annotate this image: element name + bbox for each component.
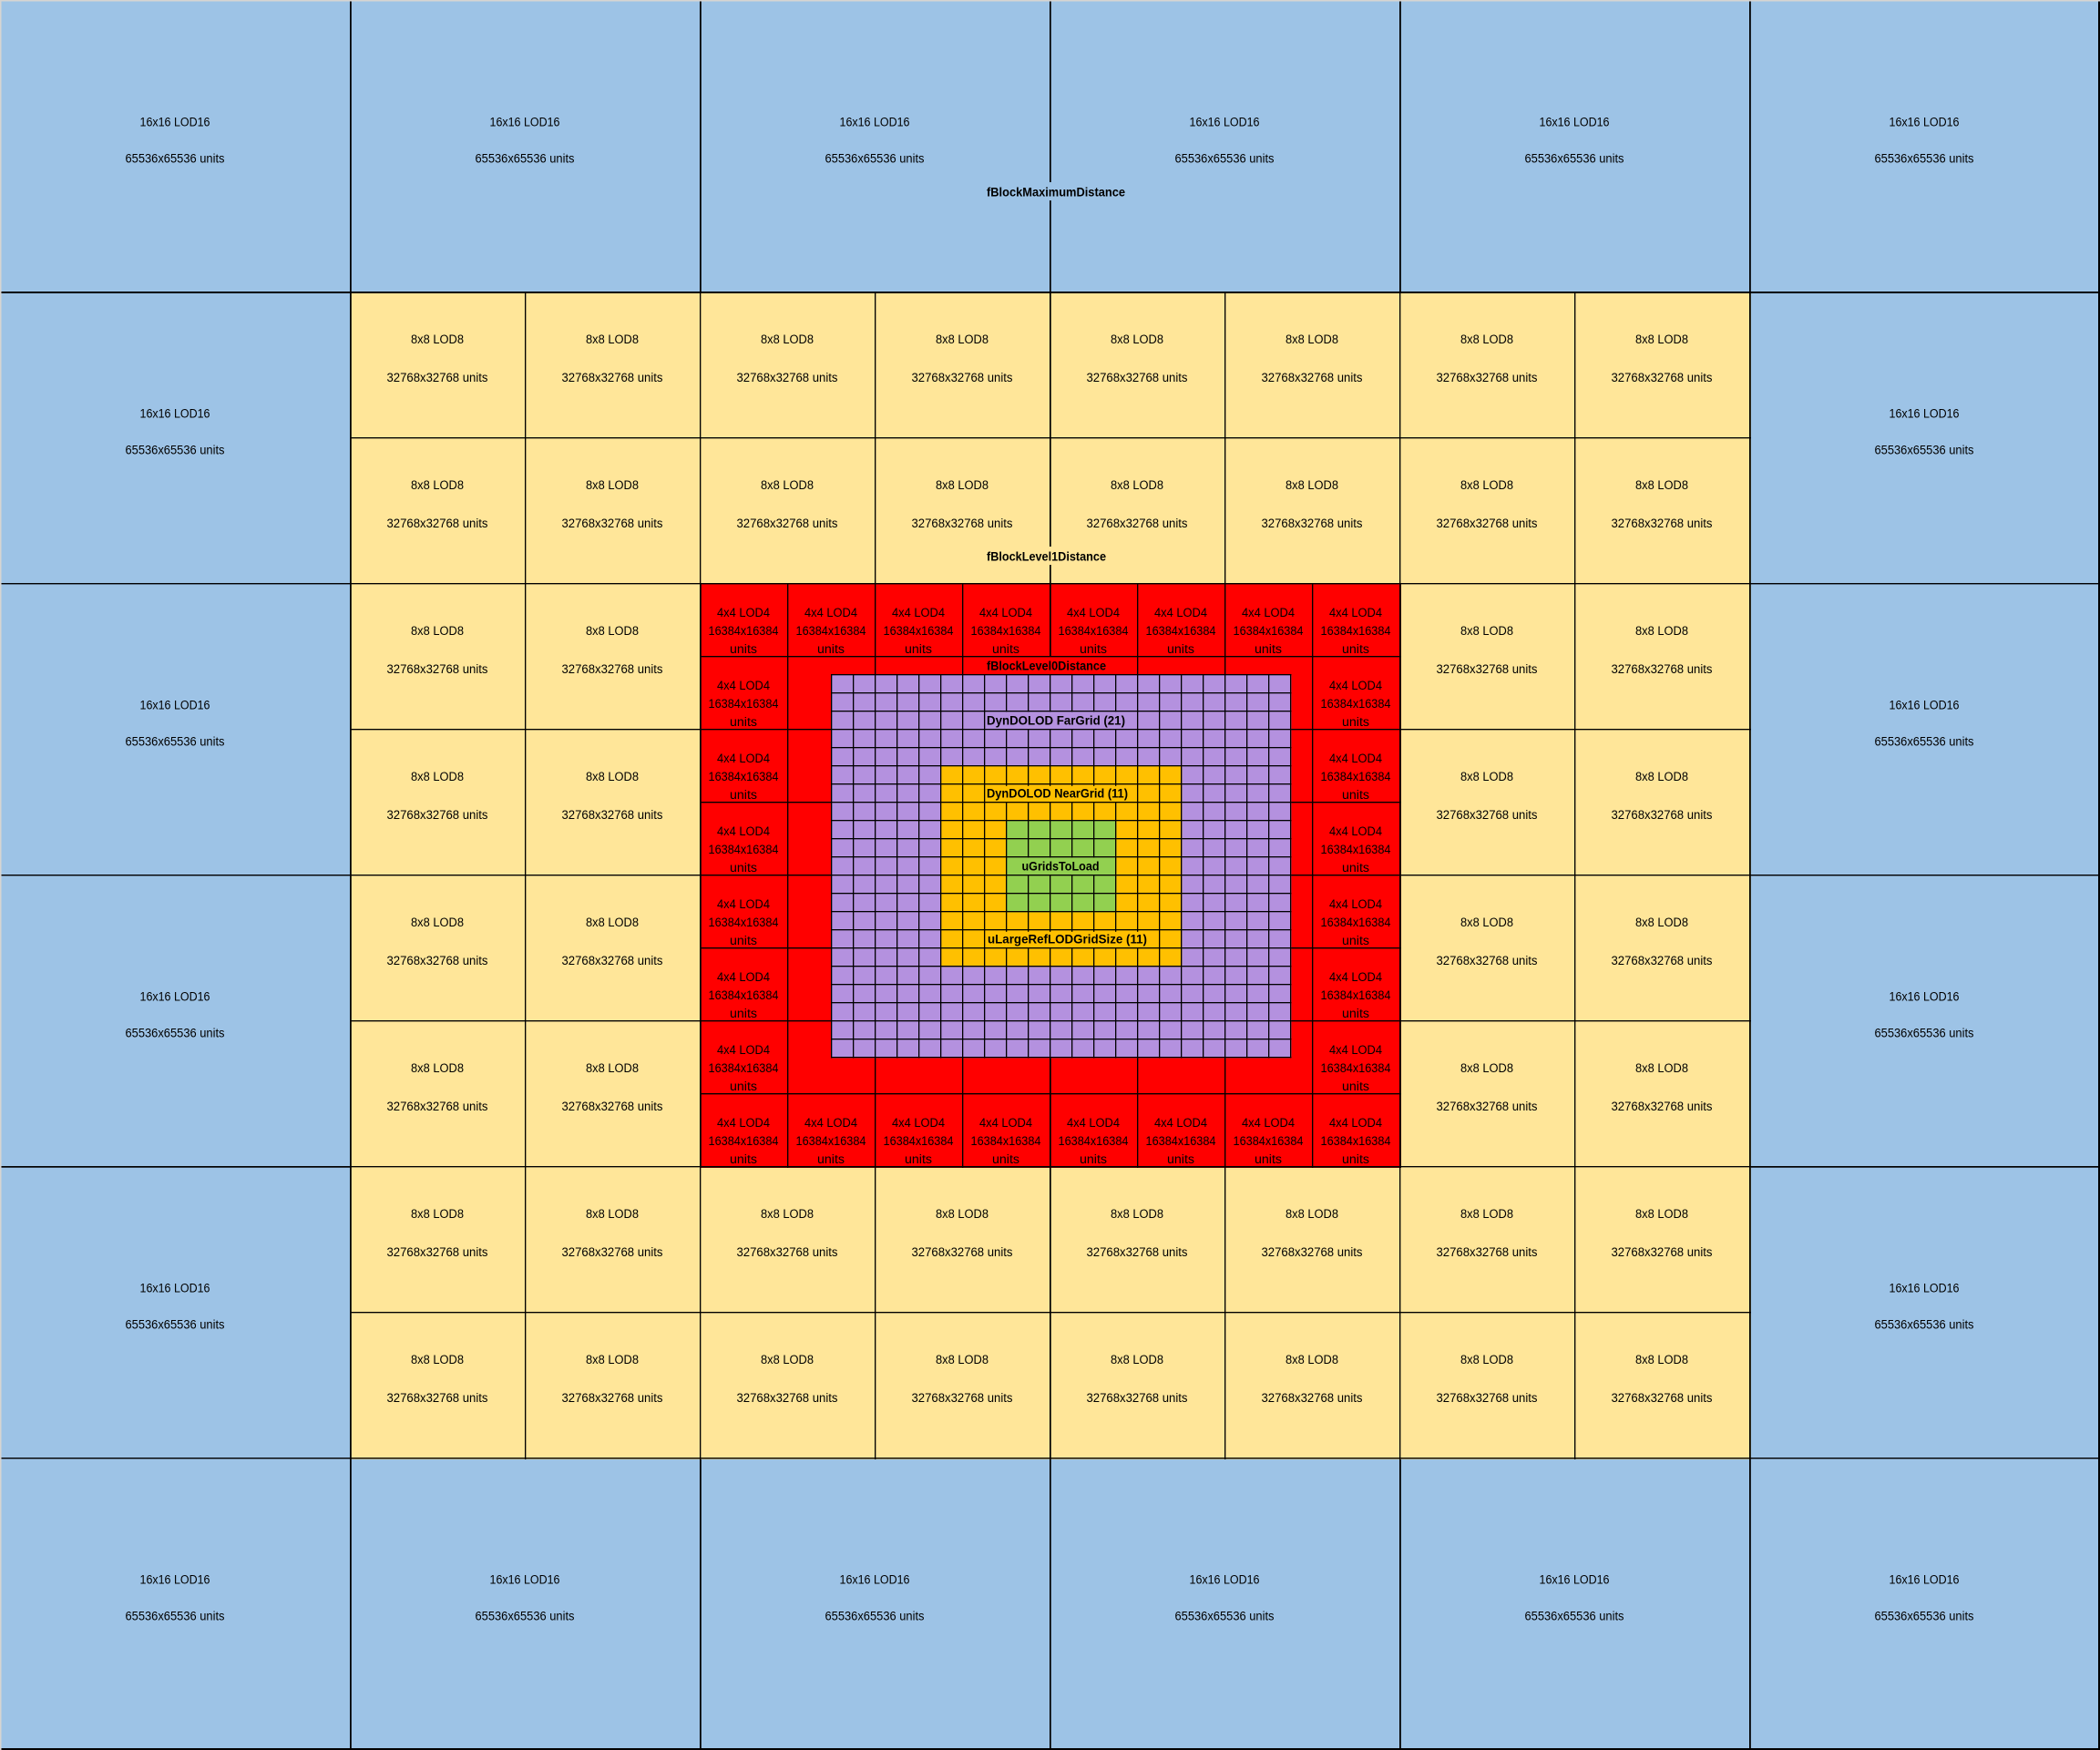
svg-text:8x8 LOD8: 8x8 LOD8 [1460, 478, 1513, 493]
svg-text:16x16 LOD16: 16x16 LOD16 [1540, 1572, 1610, 1587]
svg-text:65536x65536 units: 65536x65536 units [1525, 151, 1624, 166]
svg-text:16x16 LOD16: 16x16 LOD16 [140, 115, 210, 129]
svg-text:8x8 LOD8: 8x8 LOD8 [1111, 478, 1163, 493]
svg-text:8x8 LOD8: 8x8 LOD8 [1460, 916, 1513, 930]
svg-text:32768x32768 units: 32768x32768 units [1437, 1100, 1538, 1114]
svg-text:units: units [1342, 934, 1369, 948]
svg-text:4x4 LOD4: 4x4 LOD4 [979, 1116, 1032, 1131]
svg-text:4x4 LOD4: 4x4 LOD4 [717, 897, 770, 912]
svg-text:32768x32768 units: 32768x32768 units [912, 1391, 1013, 1406]
svg-text:65536x65536 units: 65536x65536 units [476, 1609, 575, 1623]
svg-text:16x16 LOD16: 16x16 LOD16 [1890, 989, 1960, 1004]
svg-text:16x16 LOD16: 16x16 LOD16 [1890, 1572, 1960, 1587]
svg-text:32768x32768 units: 32768x32768 units [1612, 1245, 1713, 1260]
svg-text:4x4 LOD4: 4x4 LOD4 [979, 606, 1032, 620]
svg-text:8x8 LOD8: 8x8 LOD8 [1460, 1061, 1513, 1076]
svg-text:32768x32768 units: 32768x32768 units [912, 371, 1013, 385]
svg-text:65536x65536 units: 65536x65536 units [825, 151, 925, 166]
svg-text:4x4 LOD4: 4x4 LOD4 [804, 606, 857, 620]
svg-text:65536x65536 units: 65536x65536 units [126, 1026, 225, 1040]
svg-text:65536x65536 units: 65536x65536 units [1525, 1609, 1624, 1623]
svg-text:8x8 LOD8: 8x8 LOD8 [1635, 478, 1688, 493]
svg-text:4x4 LOD4: 4x4 LOD4 [717, 606, 770, 620]
svg-text:32768x32768 units: 32768x32768 units [387, 954, 488, 968]
svg-text:8x8 LOD8: 8x8 LOD8 [586, 333, 639, 347]
svg-text:4x4 LOD4: 4x4 LOD4 [717, 752, 770, 766]
svg-text:32768x32768 units: 32768x32768 units [387, 1100, 488, 1114]
svg-text:32768x32768 units: 32768x32768 units [387, 371, 488, 385]
svg-text:16384x16384: 16384x16384 [709, 697, 779, 711]
svg-text:fBlockLevel1Distance: fBlockLevel1Distance [987, 549, 1106, 564]
svg-text:16x16 LOD16: 16x16 LOD16 [1890, 406, 1960, 421]
svg-text:8x8 LOD8: 8x8 LOD8 [586, 1207, 639, 1222]
svg-text:8x8 LOD8: 8x8 LOD8 [586, 1061, 639, 1076]
svg-text:8x8 LOD8: 8x8 LOD8 [761, 1207, 814, 1222]
svg-text:uGridsToLoad: uGridsToLoad [1022, 859, 1100, 874]
svg-text:32768x32768 units: 32768x32768 units [562, 954, 663, 968]
svg-text:4x4 LOD4: 4x4 LOD4 [717, 824, 770, 839]
svg-text:16x16 LOD16: 16x16 LOD16 [140, 1281, 210, 1295]
svg-text:32768x32768 units: 32768x32768 units [737, 517, 838, 531]
svg-text:32768x32768 units: 32768x32768 units [1437, 517, 1538, 531]
svg-text:65536x65536 units: 65536x65536 units [126, 1317, 225, 1332]
svg-text:8x8 LOD8: 8x8 LOD8 [1286, 478, 1338, 493]
svg-text:4x4 LOD4: 4x4 LOD4 [1329, 1116, 1382, 1131]
svg-text:8x8 LOD8: 8x8 LOD8 [1286, 1207, 1338, 1222]
svg-text:4x4 LOD4: 4x4 LOD4 [717, 1043, 770, 1058]
svg-text:4x4 LOD4: 4x4 LOD4 [1329, 1043, 1382, 1058]
svg-text:32768x32768 units: 32768x32768 units [562, 517, 663, 531]
svg-text:8x8 LOD8: 8x8 LOD8 [411, 1353, 464, 1367]
svg-text:32768x32768 units: 32768x32768 units [1087, 1245, 1188, 1260]
svg-text:units: units [1080, 1152, 1107, 1167]
svg-text:16x16 LOD16: 16x16 LOD16 [1890, 698, 1960, 712]
svg-text:units: units [730, 788, 757, 803]
svg-text:8x8 LOD8: 8x8 LOD8 [1286, 333, 1338, 347]
svg-text:units: units [730, 1007, 757, 1021]
svg-text:16x16 LOD16: 16x16 LOD16 [1190, 1572, 1260, 1587]
svg-text:16x16 LOD16: 16x16 LOD16 [140, 698, 210, 712]
svg-text:4x4 LOD4: 4x4 LOD4 [1329, 824, 1382, 839]
svg-text:8x8 LOD8: 8x8 LOD8 [411, 478, 464, 493]
svg-text:16384x16384: 16384x16384 [709, 1134, 779, 1149]
svg-text:16384x16384: 16384x16384 [709, 624, 779, 639]
svg-text:8x8 LOD8: 8x8 LOD8 [1286, 1353, 1338, 1367]
svg-text:65536x65536 units: 65536x65536 units [1875, 1317, 1974, 1332]
svg-text:units: units [730, 1080, 757, 1094]
svg-text:8x8 LOD8: 8x8 LOD8 [1635, 1061, 1688, 1076]
svg-text:8x8 LOD8: 8x8 LOD8 [1460, 624, 1513, 639]
svg-text:16x16 LOD16: 16x16 LOD16 [840, 1572, 910, 1587]
svg-text:32768x32768 units: 32768x32768 units [387, 808, 488, 823]
svg-text:8x8 LOD8: 8x8 LOD8 [586, 624, 639, 639]
svg-text:16384x16384: 16384x16384 [709, 916, 779, 930]
svg-text:32768x32768 units: 32768x32768 units [1612, 808, 1713, 823]
svg-text:units: units [992, 1152, 1019, 1167]
svg-text:32768x32768 units: 32768x32768 units [1087, 371, 1188, 385]
svg-text:8x8 LOD8: 8x8 LOD8 [1635, 916, 1688, 930]
svg-text:units: units [1255, 642, 1282, 657]
svg-text:units: units [730, 715, 757, 730]
svg-text:16384x16384: 16384x16384 [1321, 770, 1391, 784]
svg-text:32768x32768 units: 32768x32768 units [1437, 808, 1538, 823]
svg-text:16x16 LOD16: 16x16 LOD16 [490, 1572, 560, 1587]
svg-text:16384x16384: 16384x16384 [1321, 697, 1391, 711]
svg-text:32768x32768 units: 32768x32768 units [387, 662, 488, 677]
svg-text:65536x65536 units: 65536x65536 units [1875, 1026, 1974, 1040]
svg-text:fBlockMaximumDistance: fBlockMaximumDistance [987, 185, 1125, 200]
svg-text:16384x16384: 16384x16384 [1234, 624, 1304, 639]
svg-text:32768x32768 units: 32768x32768 units [387, 1245, 488, 1260]
svg-text:8x8 LOD8: 8x8 LOD8 [411, 1207, 464, 1222]
svg-text:32768x32768 units: 32768x32768 units [1612, 662, 1713, 677]
svg-text:4x4 LOD4: 4x4 LOD4 [1329, 897, 1382, 912]
svg-text:8x8 LOD8: 8x8 LOD8 [1635, 333, 1688, 347]
svg-text:32768x32768 units: 32768x32768 units [562, 1391, 663, 1406]
svg-text:16384x16384: 16384x16384 [1146, 1134, 1216, 1149]
svg-text:units: units [1080, 642, 1107, 657]
svg-text:32768x32768 units: 32768x32768 units [1437, 662, 1538, 677]
svg-text:16384x16384: 16384x16384 [1234, 1134, 1304, 1149]
svg-text:8x8 LOD8: 8x8 LOD8 [761, 333, 814, 347]
svg-text:32768x32768 units: 32768x32768 units [562, 808, 663, 823]
svg-text:32768x32768 units: 32768x32768 units [1437, 1391, 1538, 1406]
svg-text:32768x32768 units: 32768x32768 units [387, 517, 488, 531]
svg-text:fBlockLevel0Distance: fBlockLevel0Distance [987, 659, 1106, 673]
svg-text:16384x16384: 16384x16384 [971, 624, 1041, 639]
svg-text:units: units [1167, 1152, 1194, 1167]
svg-text:65536x65536 units: 65536x65536 units [1875, 734, 1974, 749]
svg-text:4x4 LOD4: 4x4 LOD4 [1154, 1116, 1207, 1131]
svg-text:8x8 LOD8: 8x8 LOD8 [1635, 770, 1688, 784]
svg-text:units: units [1342, 1152, 1369, 1167]
svg-text:units: units [1255, 1152, 1282, 1167]
svg-text:16x16 LOD16: 16x16 LOD16 [1890, 1281, 1960, 1295]
svg-text:16384x16384: 16384x16384 [796, 1134, 866, 1149]
svg-text:16x16 LOD16: 16x16 LOD16 [490, 115, 560, 129]
svg-text:4x4 LOD4: 4x4 LOD4 [1329, 752, 1382, 766]
svg-text:8x8 LOD8: 8x8 LOD8 [1635, 1353, 1688, 1367]
svg-text:4x4 LOD4: 4x4 LOD4 [1067, 606, 1120, 620]
svg-text:units: units [730, 642, 757, 657]
svg-text:8x8 LOD8: 8x8 LOD8 [1111, 333, 1163, 347]
svg-text:units: units [1342, 1080, 1369, 1094]
svg-text:16384x16384: 16384x16384 [796, 624, 866, 639]
svg-text:32768x32768 units: 32768x32768 units [1612, 1100, 1713, 1114]
svg-text:16384x16384: 16384x16384 [1059, 1134, 1129, 1149]
svg-text:8x8 LOD8: 8x8 LOD8 [1460, 1207, 1513, 1222]
svg-text:8x8 LOD8: 8x8 LOD8 [936, 478, 989, 493]
svg-text:32768x32768 units: 32768x32768 units [1262, 1245, 1363, 1260]
svg-text:units: units [905, 1152, 932, 1167]
svg-text:32768x32768 units: 32768x32768 units [1612, 371, 1713, 385]
svg-text:32768x32768 units: 32768x32768 units [1087, 517, 1188, 531]
svg-text:units: units [817, 642, 845, 657]
svg-text:32768x32768 units: 32768x32768 units [912, 517, 1013, 531]
svg-text:8x8 LOD8: 8x8 LOD8 [936, 1207, 989, 1222]
svg-text:32768x32768 units: 32768x32768 units [1437, 371, 1538, 385]
svg-text:32768x32768 units: 32768x32768 units [1612, 517, 1713, 531]
svg-text:32768x32768 units: 32768x32768 units [1437, 954, 1538, 968]
svg-text:4x4 LOD4: 4x4 LOD4 [717, 679, 770, 693]
svg-text:65536x65536 units: 65536x65536 units [126, 443, 225, 457]
svg-text:8x8 LOD8: 8x8 LOD8 [1460, 770, 1513, 784]
svg-text:4x4 LOD4: 4x4 LOD4 [892, 606, 945, 620]
svg-text:32768x32768 units: 32768x32768 units [737, 1245, 838, 1260]
svg-text:8x8 LOD8: 8x8 LOD8 [411, 916, 464, 930]
svg-text:16384x16384: 16384x16384 [1146, 624, 1216, 639]
svg-text:8x8 LOD8: 8x8 LOD8 [1460, 333, 1513, 347]
svg-text:8x8 LOD8: 8x8 LOD8 [1111, 1207, 1163, 1222]
svg-text:32768x32768 units: 32768x32768 units [1262, 517, 1363, 531]
svg-text:units: units [730, 934, 757, 948]
svg-text:65536x65536 units: 65536x65536 units [476, 151, 575, 166]
svg-text:16384x16384: 16384x16384 [709, 1061, 779, 1076]
svg-text:4x4 LOD4: 4x4 LOD4 [1242, 606, 1295, 620]
svg-text:8x8 LOD8: 8x8 LOD8 [936, 333, 989, 347]
svg-text:32768x32768 units: 32768x32768 units [562, 1245, 663, 1260]
svg-text:units: units [1342, 861, 1369, 875]
svg-text:8x8 LOD8: 8x8 LOD8 [586, 770, 639, 784]
svg-text:4x4 LOD4: 4x4 LOD4 [717, 1116, 770, 1131]
svg-text:16384x16384: 16384x16384 [1321, 988, 1391, 1003]
svg-text:16x16 LOD16: 16x16 LOD16 [1540, 115, 1610, 129]
svg-text:4x4 LOD4: 4x4 LOD4 [1329, 970, 1382, 985]
svg-text:32768x32768 units: 32768x32768 units [1437, 1245, 1538, 1260]
svg-text:4x4 LOD4: 4x4 LOD4 [1154, 606, 1207, 620]
svg-text:4x4 LOD4: 4x4 LOD4 [1067, 1116, 1120, 1131]
svg-text:8x8 LOD8: 8x8 LOD8 [586, 478, 639, 493]
svg-text:16384x16384: 16384x16384 [1321, 1061, 1391, 1076]
svg-text:4x4 LOD4: 4x4 LOD4 [1242, 1116, 1295, 1131]
svg-text:16384x16384: 16384x16384 [1321, 843, 1391, 857]
svg-text:units: units [1342, 1007, 1369, 1021]
svg-text:16384x16384: 16384x16384 [971, 1134, 1041, 1149]
svg-text:16384x16384: 16384x16384 [1059, 624, 1129, 639]
svg-text:16384x16384: 16384x16384 [884, 624, 954, 639]
svg-text:16x16 LOD16: 16x16 LOD16 [1890, 115, 1960, 129]
svg-text:16x16 LOD16: 16x16 LOD16 [140, 1572, 210, 1587]
svg-text:32768x32768 units: 32768x32768 units [562, 371, 663, 385]
svg-text:4x4 LOD4: 4x4 LOD4 [804, 1116, 857, 1131]
svg-text:4x4 LOD4: 4x4 LOD4 [1329, 679, 1382, 693]
svg-text:16384x16384: 16384x16384 [884, 1134, 954, 1149]
svg-text:8x8 LOD8: 8x8 LOD8 [1635, 624, 1688, 639]
svg-text:16x16 LOD16: 16x16 LOD16 [140, 406, 210, 421]
svg-text:8x8 LOD8: 8x8 LOD8 [586, 916, 639, 930]
svg-text:8x8 LOD8: 8x8 LOD8 [761, 478, 814, 493]
svg-text:8x8 LOD8: 8x8 LOD8 [411, 1061, 464, 1076]
svg-text:16384x16384: 16384x16384 [709, 843, 779, 857]
svg-text:8x8 LOD8: 8x8 LOD8 [1111, 1353, 1163, 1367]
svg-text:32768x32768 units: 32768x32768 units [1262, 1391, 1363, 1406]
svg-text:units: units [1342, 715, 1369, 730]
svg-text:DynDOLOD NearGrid (11): DynDOLOD NearGrid (11) [987, 786, 1128, 801]
svg-text:8x8 LOD8: 8x8 LOD8 [411, 333, 464, 347]
svg-text:units: units [1342, 788, 1369, 803]
svg-text:65536x65536 units: 65536x65536 units [1175, 151, 1275, 166]
svg-text:units: units [817, 1152, 845, 1167]
svg-text:DynDOLOD FarGrid (21): DynDOLOD FarGrid (21) [987, 713, 1125, 728]
svg-text:4x4 LOD4: 4x4 LOD4 [1329, 606, 1382, 620]
svg-text:8x8 LOD8: 8x8 LOD8 [936, 1353, 989, 1367]
svg-text:65536x65536 units: 65536x65536 units [825, 1609, 925, 1623]
svg-text:32768x32768 units: 32768x32768 units [912, 1245, 1013, 1260]
svg-text:8x8 LOD8: 8x8 LOD8 [1635, 1207, 1688, 1222]
svg-text:8x8 LOD8: 8x8 LOD8 [411, 770, 464, 784]
svg-text:65536x65536 units: 65536x65536 units [126, 734, 225, 749]
svg-text:16384x16384: 16384x16384 [709, 988, 779, 1003]
svg-text:16384x16384: 16384x16384 [1321, 624, 1391, 639]
svg-text:32768x32768 units: 32768x32768 units [737, 371, 838, 385]
svg-text:4x4 LOD4: 4x4 LOD4 [717, 970, 770, 985]
svg-text:4x4 LOD4: 4x4 LOD4 [892, 1116, 945, 1131]
svg-text:units: units [730, 1152, 757, 1167]
svg-text:16384x16384: 16384x16384 [709, 770, 779, 784]
svg-text:units: units [992, 642, 1019, 657]
svg-text:32768x32768 units: 32768x32768 units [1087, 1391, 1188, 1406]
svg-text:8x8 LOD8: 8x8 LOD8 [411, 624, 464, 639]
svg-text:65536x65536 units: 65536x65536 units [1875, 151, 1974, 166]
svg-text:uLargeRefLODGridSize (11): uLargeRefLODGridSize (11) [988, 932, 1147, 947]
svg-text:65536x65536 units: 65536x65536 units [1875, 443, 1974, 457]
svg-text:8x8 LOD8: 8x8 LOD8 [1460, 1353, 1513, 1367]
svg-text:65536x65536 units: 65536x65536 units [1875, 1609, 1974, 1623]
svg-text:16x16 LOD16: 16x16 LOD16 [140, 989, 210, 1004]
svg-text:16x16 LOD16: 16x16 LOD16 [1190, 115, 1260, 129]
svg-text:65536x65536 units: 65536x65536 units [1175, 1609, 1275, 1623]
svg-text:16384x16384: 16384x16384 [1321, 1134, 1391, 1149]
svg-text:65536x65536 units: 65536x65536 units [126, 1609, 225, 1623]
svg-text:units: units [730, 861, 757, 875]
svg-text:8x8 LOD8: 8x8 LOD8 [761, 1353, 814, 1367]
svg-text:32768x32768 units: 32768x32768 units [562, 1100, 663, 1114]
svg-text:32768x32768 units: 32768x32768 units [1612, 954, 1713, 968]
svg-text:32768x32768 units: 32768x32768 units [1612, 1391, 1713, 1406]
svg-text:16x16 LOD16: 16x16 LOD16 [840, 115, 910, 129]
svg-text:16384x16384: 16384x16384 [1321, 916, 1391, 930]
svg-text:units: units [905, 642, 932, 657]
svg-text:32768x32768 units: 32768x32768 units [562, 662, 663, 677]
svg-text:8x8 LOD8: 8x8 LOD8 [586, 1353, 639, 1367]
svg-text:units: units [1167, 642, 1194, 657]
svg-text:units: units [1342, 642, 1369, 657]
svg-text:65536x65536 units: 65536x65536 units [126, 151, 225, 166]
svg-text:32768x32768 units: 32768x32768 units [387, 1391, 488, 1406]
svg-text:32768x32768 units: 32768x32768 units [1262, 371, 1363, 385]
svg-text:32768x32768 units: 32768x32768 units [737, 1391, 838, 1406]
